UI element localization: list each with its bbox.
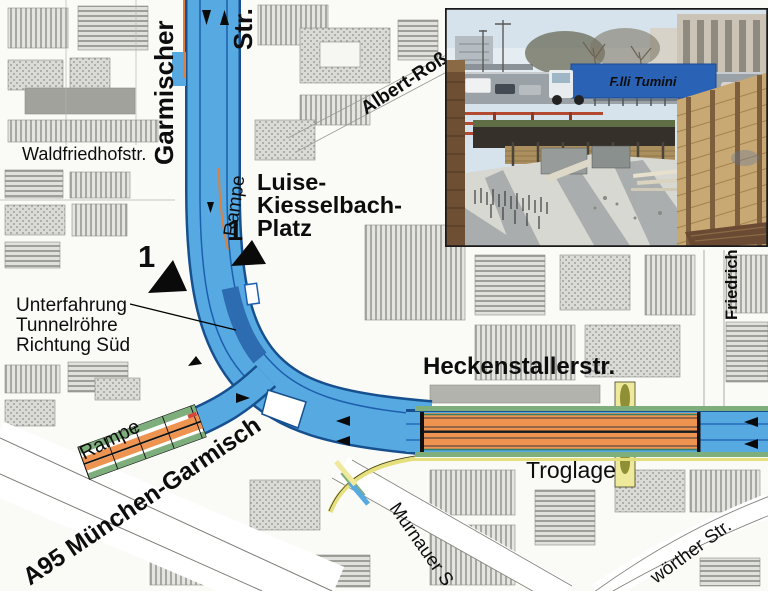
- troglage-orange-band: [420, 412, 701, 452]
- truck-logo-text: F.lli Tumini: [610, 74, 677, 89]
- east-corridor: [406, 406, 768, 461]
- svg-text:Richtung Süd: Richtung Süd: [16, 335, 130, 356]
- city-map: Garmischer Str. Waldfriedhofstr. Rampe A…: [0, 0, 768, 591]
- timber-post-left: [445, 60, 465, 247]
- silver-car: [519, 85, 541, 95]
- small-structure-box: [245, 283, 260, 304]
- graffiti-mark: [731, 150, 759, 166]
- label-troglage: Troglage: [526, 457, 616, 483]
- tunnel-portal-east: [697, 412, 701, 452]
- svg-text:1: 1: [138, 239, 155, 274]
- tunnel-portal-west: [420, 412, 424, 452]
- planning-map-page: Garmischer Str. Waldfriedhofstr. Rampe A…: [0, 0, 768, 591]
- timber-wall-right: [677, 72, 768, 247]
- label-garmischer-str: Garmischer: [149, 20, 179, 165]
- label-unterfahrung: Unterfahrung Tunnelröhre Richtung Süd: [16, 295, 130, 356]
- label-waldfriedhofstr: Waldfriedhofstr.: [22, 144, 146, 164]
- label-str-top: Str.: [228, 8, 258, 50]
- dark-car: [495, 84, 515, 94]
- inset-photo: F.lli Tumini: [445, 8, 768, 247]
- svg-text:1: 1: [227, 215, 243, 247]
- label-friedrich: Friedrich: [723, 249, 741, 320]
- label-heckenstallerstr: Heckenstallerstr.: [423, 353, 615, 380]
- svg-text:Tunnelröhre: Tunnelröhre: [16, 315, 118, 336]
- svg-text:Platz: Platz: [257, 215, 312, 241]
- svg-text:Unterfahrung: Unterfahrung: [16, 295, 127, 316]
- white-van: [465, 78, 491, 93]
